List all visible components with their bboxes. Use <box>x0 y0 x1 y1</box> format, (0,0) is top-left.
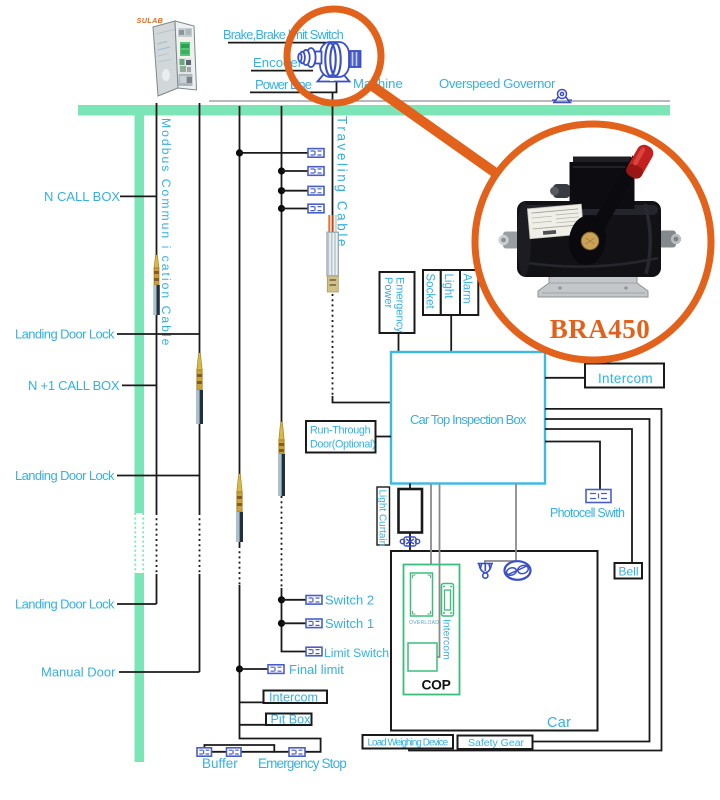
svg-text:Emergency Stop: Emergency Stop <box>258 756 346 771</box>
svg-text:Emergency: Emergency <box>394 277 406 333</box>
svg-text:Light: Light <box>442 274 454 300</box>
svg-text:Switch 2: Switch 2 <box>325 593 374 608</box>
svg-text:Light Curtain: Light Curtain <box>377 490 388 547</box>
svg-text:Alarm: Alarm <box>461 274 473 304</box>
svg-text:Landing Door Lock: Landing Door Lock <box>15 327 115 342</box>
svg-text:OVERLOAD: OVERLOAD <box>409 620 439 626</box>
svg-text:Switch 1: Switch 1 <box>325 616 374 631</box>
svg-text:Car Top Inspection Box: Car Top Inspection Box <box>410 412 527 427</box>
svg-text:Overspeed Governor: Overspeed Governor <box>439 76 556 91</box>
svg-text:Limit Switch: Limit Switch <box>324 646 389 660</box>
svg-text:SULAB: SULAB <box>137 16 164 25</box>
svg-text:Load Weighing Device: Load Weighing Device <box>368 738 449 749</box>
svg-text:Brake,Brake limit Switch: Brake,Brake limit Switch <box>223 27 344 42</box>
svg-text:Door(Optional): Door(Optional) <box>310 439 375 451</box>
svg-text:Socket: Socket <box>424 274 436 310</box>
svg-text:Run-Through: Run-Through <box>310 425 371 437</box>
svg-text:COP: COP <box>422 678 451 693</box>
svg-text:Modbus Commun i cation Cable: Modbus Commun i cation Cable <box>159 118 173 347</box>
svg-text:Manual Door: Manual Door <box>41 665 116 680</box>
svg-text:Safety Gear: Safety Gear <box>468 737 525 749</box>
svg-text:Photocell Swith: Photocell Swith <box>550 506 625 520</box>
svg-text:Bell: Bell <box>619 565 639 579</box>
svg-text:Intercom: Intercom <box>269 691 318 705</box>
svg-text:N CALL BOX: N CALL BOX <box>44 189 120 204</box>
svg-text:Intercom: Intercom <box>441 619 453 660</box>
svg-text:Car: Car <box>547 715 571 731</box>
svg-text:Landing Door Lock: Landing Door Lock <box>15 597 115 612</box>
svg-text:Landing Door Lock: Landing Door Lock <box>15 468 115 483</box>
svg-text:BRA450: BRA450 <box>550 314 651 344</box>
svg-text:Buffer: Buffer <box>202 756 238 771</box>
svg-text:N +1 CALL BOX: N +1 CALL BOX <box>28 378 120 393</box>
svg-text:Encoder: Encoder <box>253 55 303 70</box>
svg-text:Intercom: Intercom <box>598 371 653 386</box>
svg-text:Pit Box: Pit Box <box>271 713 312 727</box>
svg-text:Final limit: Final limit <box>289 662 344 677</box>
svg-text:Power: Power <box>382 277 394 309</box>
